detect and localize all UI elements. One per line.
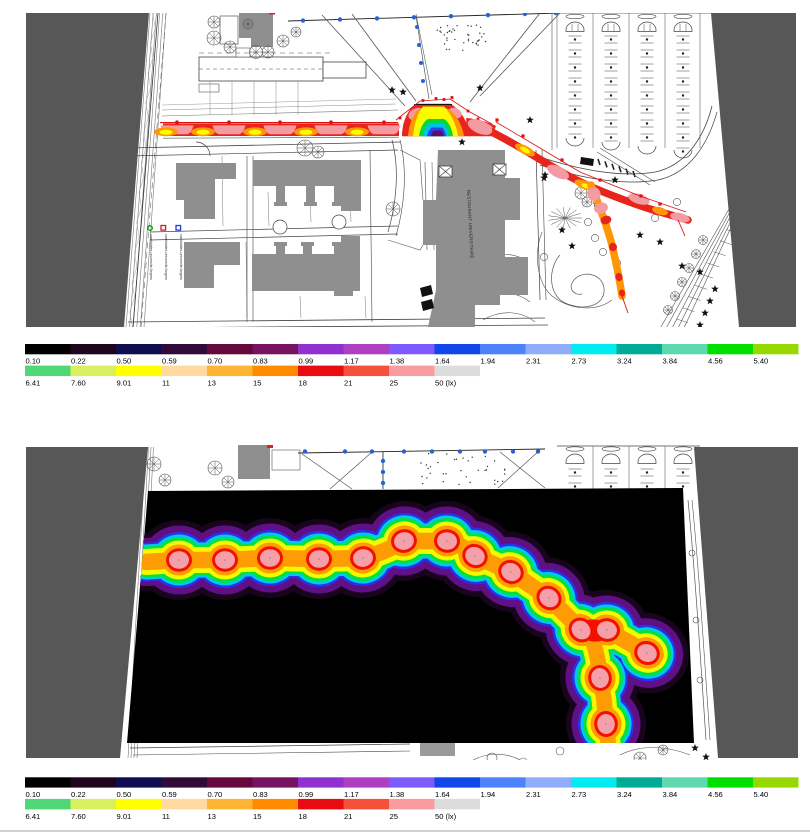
svg-text:7.60: 7.60 — [71, 379, 86, 388]
svg-text:0.10: 0.10 — [26, 790, 41, 799]
svg-text:0.70: 0.70 — [208, 790, 223, 799]
svg-text:2.31: 2.31 — [526, 790, 541, 799]
svg-text:0.22: 0.22 — [71, 357, 86, 366]
svg-text:1.64: 1.64 — [435, 790, 450, 799]
svg-text:15: 15 — [253, 379, 261, 388]
svg-text:2.73: 2.73 — [572, 790, 587, 799]
svg-text:18: 18 — [299, 812, 307, 821]
svg-text:1.94: 1.94 — [481, 790, 496, 799]
svg-text:candidates universite Angers: candidates universite Angers — [179, 234, 183, 280]
svg-text:0.99: 0.99 — [299, 357, 314, 366]
svg-text:3.84: 3.84 — [663, 790, 678, 799]
svg-text:11: 11 — [162, 379, 170, 388]
svg-text:0.99: 0.99 — [299, 790, 314, 799]
svg-text:21: 21 — [344, 812, 352, 821]
svg-text:1.94: 1.94 — [481, 357, 496, 366]
svg-text:1.17: 1.17 — [344, 790, 359, 799]
svg-text:candidates universite Angers: candidates universite Angers — [149, 234, 153, 280]
svg-text:0.59: 0.59 — [162, 790, 177, 799]
svg-text:6.41: 6.41 — [26, 379, 41, 388]
svg-text:0.10: 0.10 — [26, 357, 41, 366]
svg-text:0.59: 0.59 — [162, 357, 177, 366]
svg-text:1.64: 1.64 — [435, 357, 450, 366]
svg-text:18: 18 — [299, 379, 307, 388]
svg-text:4.56: 4.56 — [708, 790, 723, 799]
svg-text:5.40: 5.40 — [754, 790, 769, 799]
svg-text:3.24: 3.24 — [617, 357, 632, 366]
svg-text:7.60: 7.60 — [71, 812, 86, 821]
svg-text:1.38: 1.38 — [390, 357, 405, 366]
svg-text:2.73: 2.73 — [572, 357, 587, 366]
svg-text:0.50: 0.50 — [117, 357, 132, 366]
svg-text:9.01: 9.01 — [117, 379, 132, 388]
svg-text:21: 21 — [344, 379, 352, 388]
svg-text:0.50: 0.50 — [117, 790, 132, 799]
svg-text:9.01: 9.01 — [117, 812, 132, 821]
svg-text:3.84: 3.84 — [663, 357, 678, 366]
svg-text:6.41: 6.41 — [26, 812, 41, 821]
svg-text:0.83: 0.83 — [253, 357, 268, 366]
svg-text:25: 25 — [390, 379, 398, 388]
svg-text:25: 25 — [390, 812, 398, 821]
svg-text:15: 15 — [253, 812, 261, 821]
svg-text:50 (lx): 50 (lx) — [435, 812, 457, 821]
svg-text:11: 11 — [162, 812, 170, 821]
svg-text:5.40: 5.40 — [754, 357, 769, 366]
svg-text:candidates universite Angers: candidates universite Angers — [164, 234, 168, 280]
svg-text:0.70: 0.70 — [208, 357, 223, 366]
svg-text:0.22: 0.22 — [71, 790, 86, 799]
svg-text:50 (lx): 50 (lx) — [435, 379, 457, 388]
svg-text:13: 13 — [208, 379, 216, 388]
svg-text:4.56: 4.56 — [708, 357, 723, 366]
svg-text:1.38: 1.38 — [390, 790, 405, 799]
svg-text:2.31: 2.31 — [526, 357, 541, 366]
svg-text:13: 13 — [208, 812, 216, 821]
svg-text:3.24: 3.24 — [617, 790, 632, 799]
svg-text:1.17: 1.17 — [344, 357, 359, 366]
svg-text:0.83: 0.83 — [253, 790, 268, 799]
